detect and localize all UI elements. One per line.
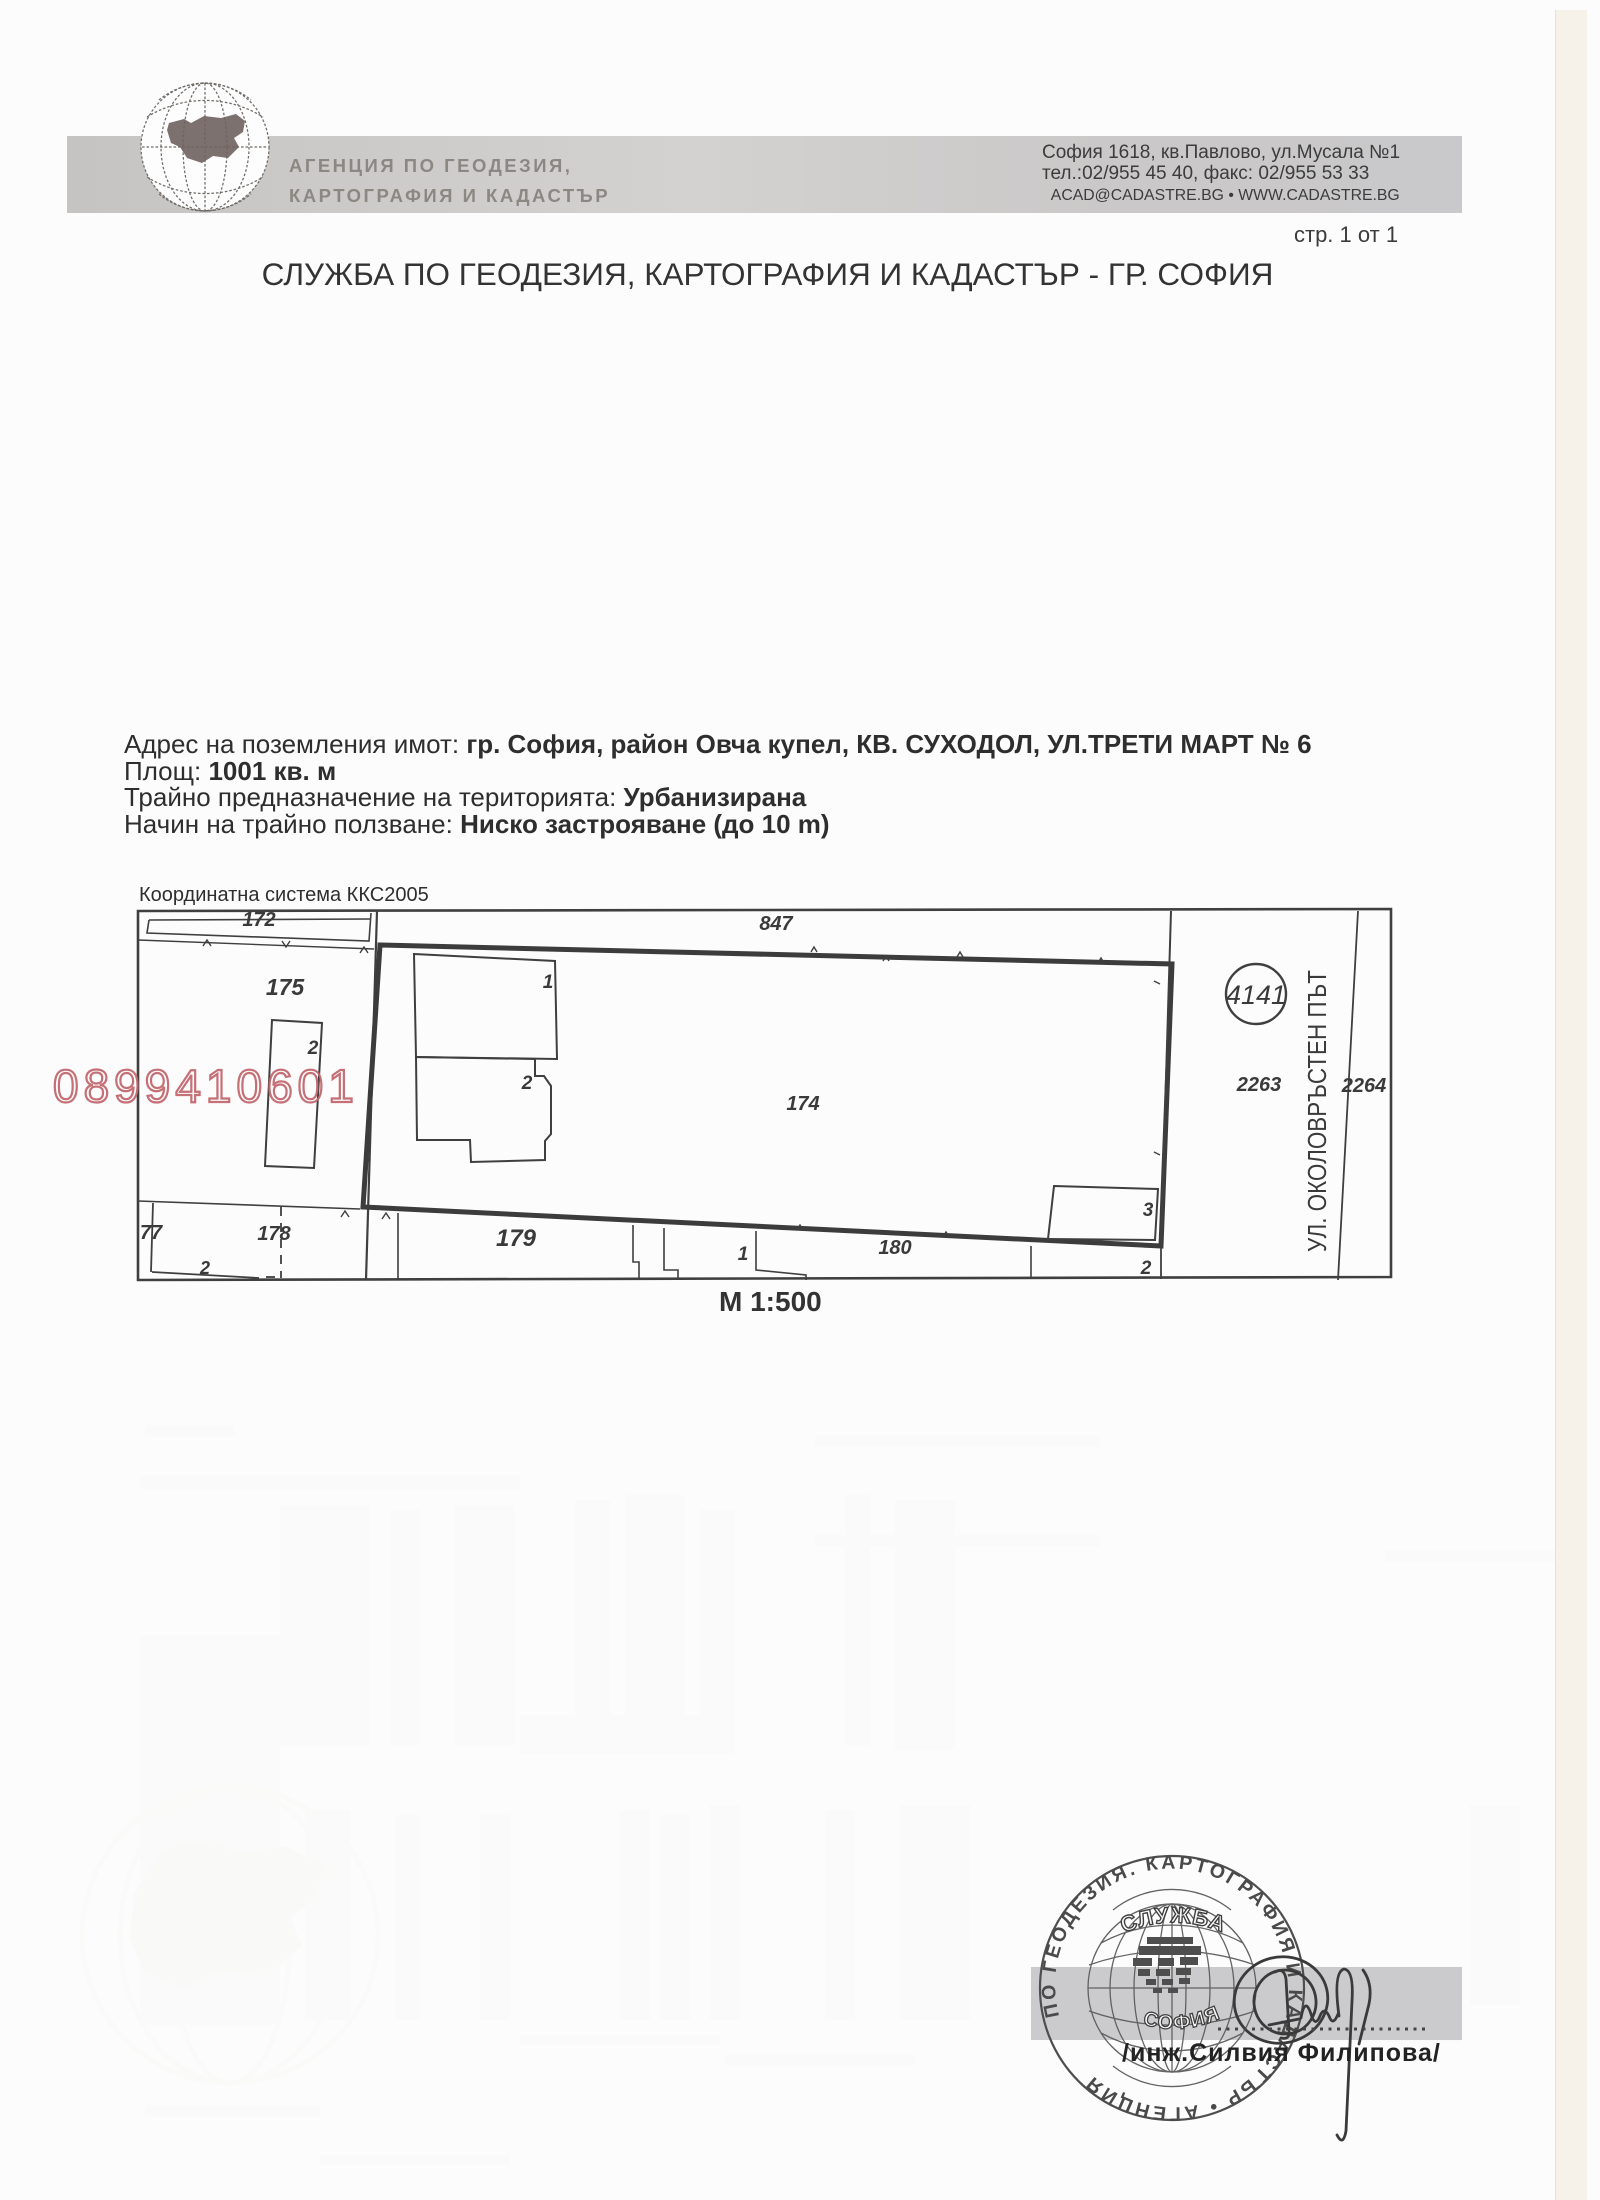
- svg-text:2: 2: [1140, 1258, 1152, 1279]
- svg-text:2264: 2264: [1341, 1075, 1387, 1097]
- svg-text:178: 178: [257, 1223, 291, 1245]
- svg-text:847: 847: [759, 913, 793, 935]
- svg-text:2: 2: [521, 1073, 533, 1094]
- svg-text:2: 2: [199, 1258, 210, 1278]
- svg-text:174: 174: [786, 1093, 819, 1115]
- svg-text:4141: 4141: [1226, 980, 1286, 1010]
- svg-text:1: 1: [543, 972, 554, 993]
- svg-text:2263: 2263: [1236, 1074, 1282, 1096]
- svg-text:77: 77: [140, 1222, 163, 1244]
- svg-text:0899410601: 0899410601: [53, 1060, 359, 1112]
- svg-text:175: 175: [266, 974, 306, 1000]
- svg-text:180: 180: [878, 1237, 911, 1259]
- svg-text:172: 172: [242, 909, 275, 931]
- svg-text:3: 3: [1143, 1200, 1154, 1221]
- svg-text:СОФИЯ: СОФИЯ: [1141, 2002, 1223, 2034]
- svg-text:179: 179: [496, 1225, 537, 1252]
- svg-text:1: 1: [738, 1244, 749, 1265]
- svg-text:2: 2: [307, 1038, 319, 1059]
- svg-text:УЛ. ОКОЛОВРЪСТЕН ПЪТ: УЛ. ОКОЛОВРЪСТЕН ПЪТ: [1302, 970, 1332, 1252]
